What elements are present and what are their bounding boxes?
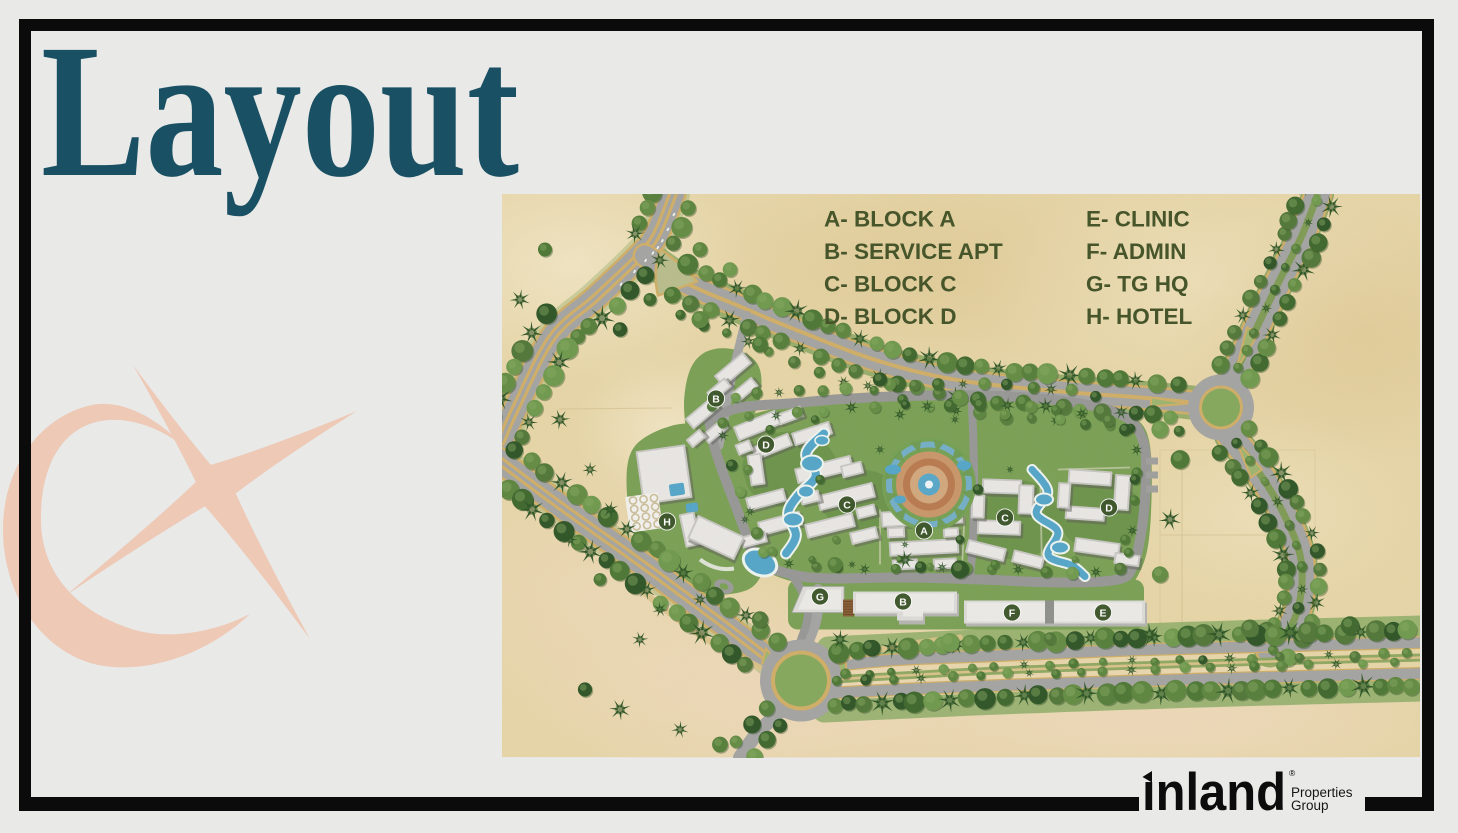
svg-text:A- BLOCK A: A- BLOCK A bbox=[824, 207, 956, 232]
svg-text:Group: Group bbox=[1291, 798, 1329, 813]
svg-text:B- SERVICE APT: B- SERVICE APT bbox=[824, 239, 1003, 264]
svg-text:Layout: Layout bbox=[41, 6, 519, 217]
svg-text:G- TG HQ: G- TG HQ bbox=[1086, 272, 1189, 297]
svg-text:H- HOTEL: H- HOTEL bbox=[1086, 304, 1192, 329]
svg-text:D- BLOCK D: D- BLOCK D bbox=[824, 304, 956, 329]
svg-text:®: ® bbox=[1289, 768, 1296, 778]
svg-text:F- ADMIN: F- ADMIN bbox=[1086, 239, 1186, 264]
svg-text:E- CLINIC: E- CLINIC bbox=[1086, 207, 1190, 232]
svg-text:ınland: ınland bbox=[1142, 763, 1286, 820]
svg-text:C- BLOCK C: C- BLOCK C bbox=[824, 272, 956, 297]
